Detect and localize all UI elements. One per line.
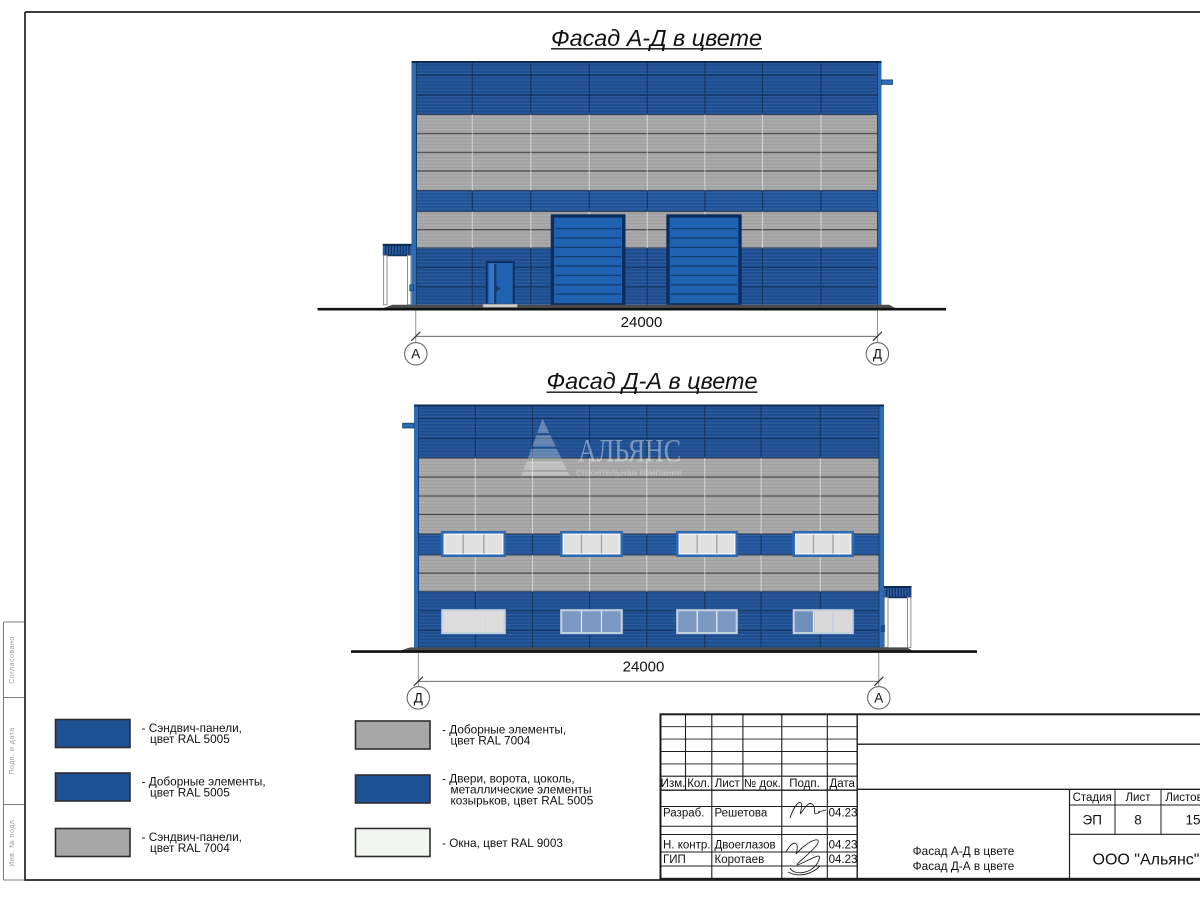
svg-text:Лист: Лист xyxy=(1126,792,1152,804)
svg-text:АЛЬЯНС: АЛЬЯНС xyxy=(578,434,681,470)
svg-text:Двоеглазов: Двоеглазов xyxy=(715,840,776,852)
svg-text:Инв. № подл.: Инв. № подл. xyxy=(9,817,16,867)
svg-text:Стадия: Стадия xyxy=(1073,792,1112,804)
svg-text:Фасад А-Д в цвете: Фасад А-Д в цвете xyxy=(551,25,762,51)
svg-text:цвет RAL 7004: цвет RAL 7004 xyxy=(451,734,531,748)
svg-text:Разраб.: Разраб. xyxy=(663,808,704,820)
svg-text:24000: 24000 xyxy=(623,658,665,675)
svg-text:строительная компания: строительная компания xyxy=(576,468,682,479)
svg-text:Н. контр.: Н. контр. xyxy=(663,840,710,852)
svg-text:24000: 24000 xyxy=(621,314,663,331)
svg-text:15: 15 xyxy=(1185,813,1200,828)
svg-text:Лист: Лист xyxy=(715,778,741,790)
svg-text:04.23: 04.23 xyxy=(829,808,858,820)
svg-text:Фасад А-Д в цвете: Фасад А-Д в цвете xyxy=(913,844,1015,858)
svg-text:Листов: Листов xyxy=(1165,792,1200,804)
svg-text:цвет RAL 5005: цвет RAL 5005 xyxy=(150,732,230,746)
svg-text:ООО "Альянс": ООО "Альянс" xyxy=(1093,852,1200,869)
svg-text:04.23: 04.23 xyxy=(829,840,858,852)
svg-text:Фасад Д-А в цвете: Фасад Д-А в цвете xyxy=(913,859,1015,873)
svg-text:Подп. и дата: Подп. и дата xyxy=(9,727,16,774)
svg-text:№ док.: № док. xyxy=(744,778,781,790)
svg-text:Изм.: Изм. xyxy=(661,778,686,790)
svg-text:Фасад Д-А в цвете: Фасад Д-А в цвете xyxy=(547,368,758,394)
svg-text:А: А xyxy=(411,346,420,361)
svg-text:цвет RAL 7004: цвет RAL 7004 xyxy=(150,841,230,855)
svg-text:ГИП: ГИП xyxy=(663,854,686,866)
svg-text:Подп.: Подп. xyxy=(789,778,820,790)
svg-text:Дата: Дата xyxy=(829,778,855,790)
svg-text:Коротаев: Коротаев xyxy=(715,854,765,866)
svg-text:- Окна, цвет RAL 9003: - Окна, цвет RAL 9003 xyxy=(442,836,563,850)
svg-text:Кол.: Кол. xyxy=(687,778,710,790)
svg-text:цвет RAL 5005: цвет RAL 5005 xyxy=(150,786,230,800)
svg-text:8: 8 xyxy=(1134,813,1142,828)
svg-text:Д: Д xyxy=(873,346,882,361)
svg-text:04.23: 04.23 xyxy=(829,854,858,866)
svg-text:Согласовано: Согласовано xyxy=(9,636,16,684)
svg-text:козырьков, цвет RAL 5005: козырьков, цвет RAL 5005 xyxy=(451,794,594,808)
svg-text:А: А xyxy=(874,690,883,705)
svg-text:ЭП: ЭП xyxy=(1082,813,1101,828)
svg-text:Решетова: Решетова xyxy=(715,808,768,820)
svg-text:Д: Д xyxy=(414,690,423,705)
